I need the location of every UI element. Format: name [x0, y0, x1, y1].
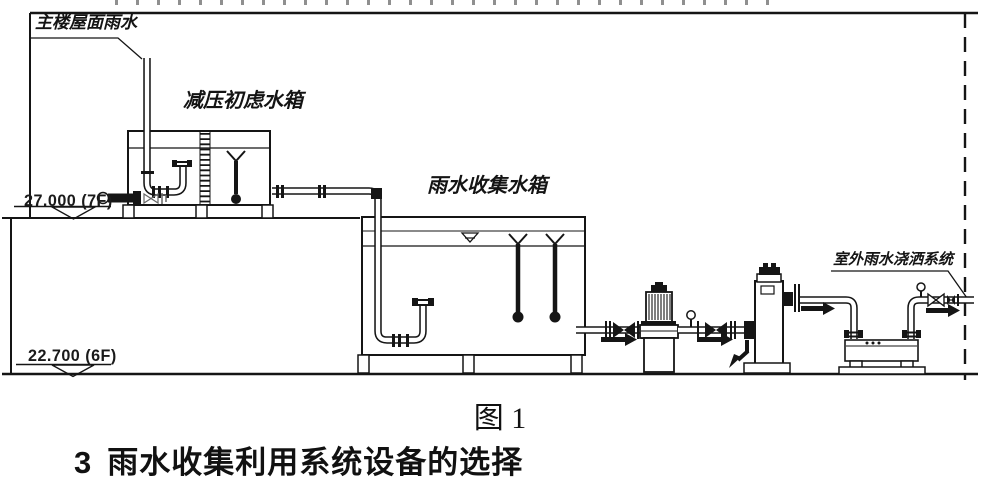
gate-valve-icon — [613, 322, 624, 338]
elevation-value: 27.000 — [24, 191, 76, 210]
section-title: 雨水收集利用系统设备的选择 — [107, 445, 523, 480]
pump-motor — [646, 292, 672, 322]
elevation-floor: (6F) — [85, 346, 117, 365]
pump-pedestal — [644, 338, 674, 372]
figure-caption: 图 1 — [400, 393, 600, 437]
pressure-gauge-icon — [917, 283, 925, 291]
label-pressure-reducing-filter-tank: 减压初虑水箱 — [183, 91, 303, 111]
section-heading: 3雨水收集利用系统设备的选择 — [74, 437, 523, 482]
label-roof-rainwater: 主楼屋面雨水 — [35, 14, 137, 31]
flow-arrow-icon — [697, 333, 733, 346]
elevation-marker-7f: 27.000 (7F) — [24, 191, 113, 211]
elevation-value: 22.700 — [28, 346, 80, 365]
figure-canvas: 主楼屋面雨水 减压初虑水箱 雨水收集水箱 室外雨水浇洒系统 27.000 (7F… — [0, 0, 992, 484]
label-rainwater-collection-tank: 雨水收集水箱 — [427, 176, 547, 196]
elevation-marker-6f: 22.700 (6F) — [28, 346, 117, 366]
filter-unit — [729, 263, 799, 373]
elevation-floor: (7F) — [81, 191, 113, 210]
pressure-gauge-icon — [687, 311, 695, 319]
section-number: 3 — [74, 445, 92, 480]
pump-unit — [576, 282, 744, 372]
label-outdoor-spray-system: 室外雨水浇洒系统 — [833, 252, 953, 267]
flow-arrow-icon — [801, 302, 835, 315]
